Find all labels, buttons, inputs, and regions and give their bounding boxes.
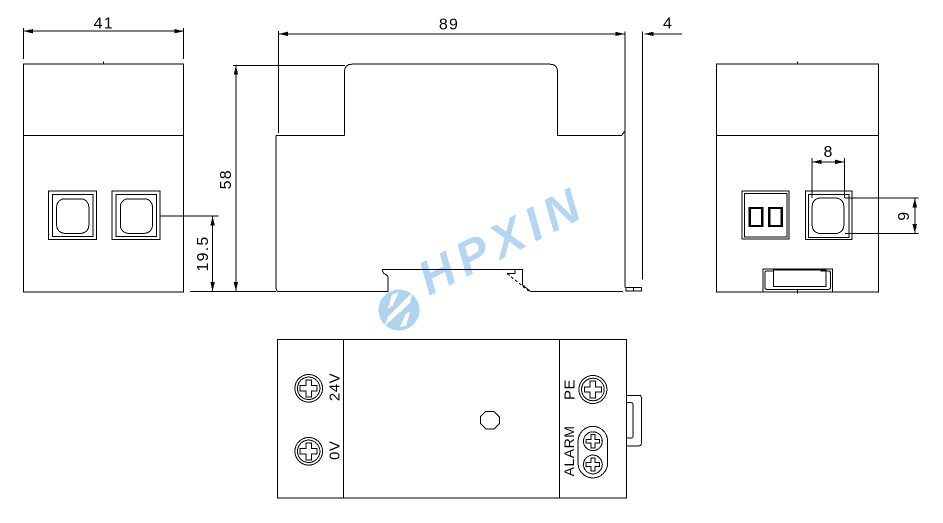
svg-text:89: 89 <box>439 17 459 34</box>
svg-text:ALARM: ALARM <box>561 426 577 477</box>
svg-text:PE: PE <box>562 379 579 400</box>
svg-text:8: 8 <box>824 144 834 161</box>
svg-text:24V: 24V <box>327 373 344 401</box>
svg-text:0V: 0V <box>326 441 343 460</box>
svg-text:4: 4 <box>663 16 673 33</box>
svg-text:9: 9 <box>896 211 913 221</box>
svg-text:58: 58 <box>218 169 235 189</box>
svg-text:41: 41 <box>94 16 114 33</box>
svg-text:19.5: 19.5 <box>195 236 212 272</box>
